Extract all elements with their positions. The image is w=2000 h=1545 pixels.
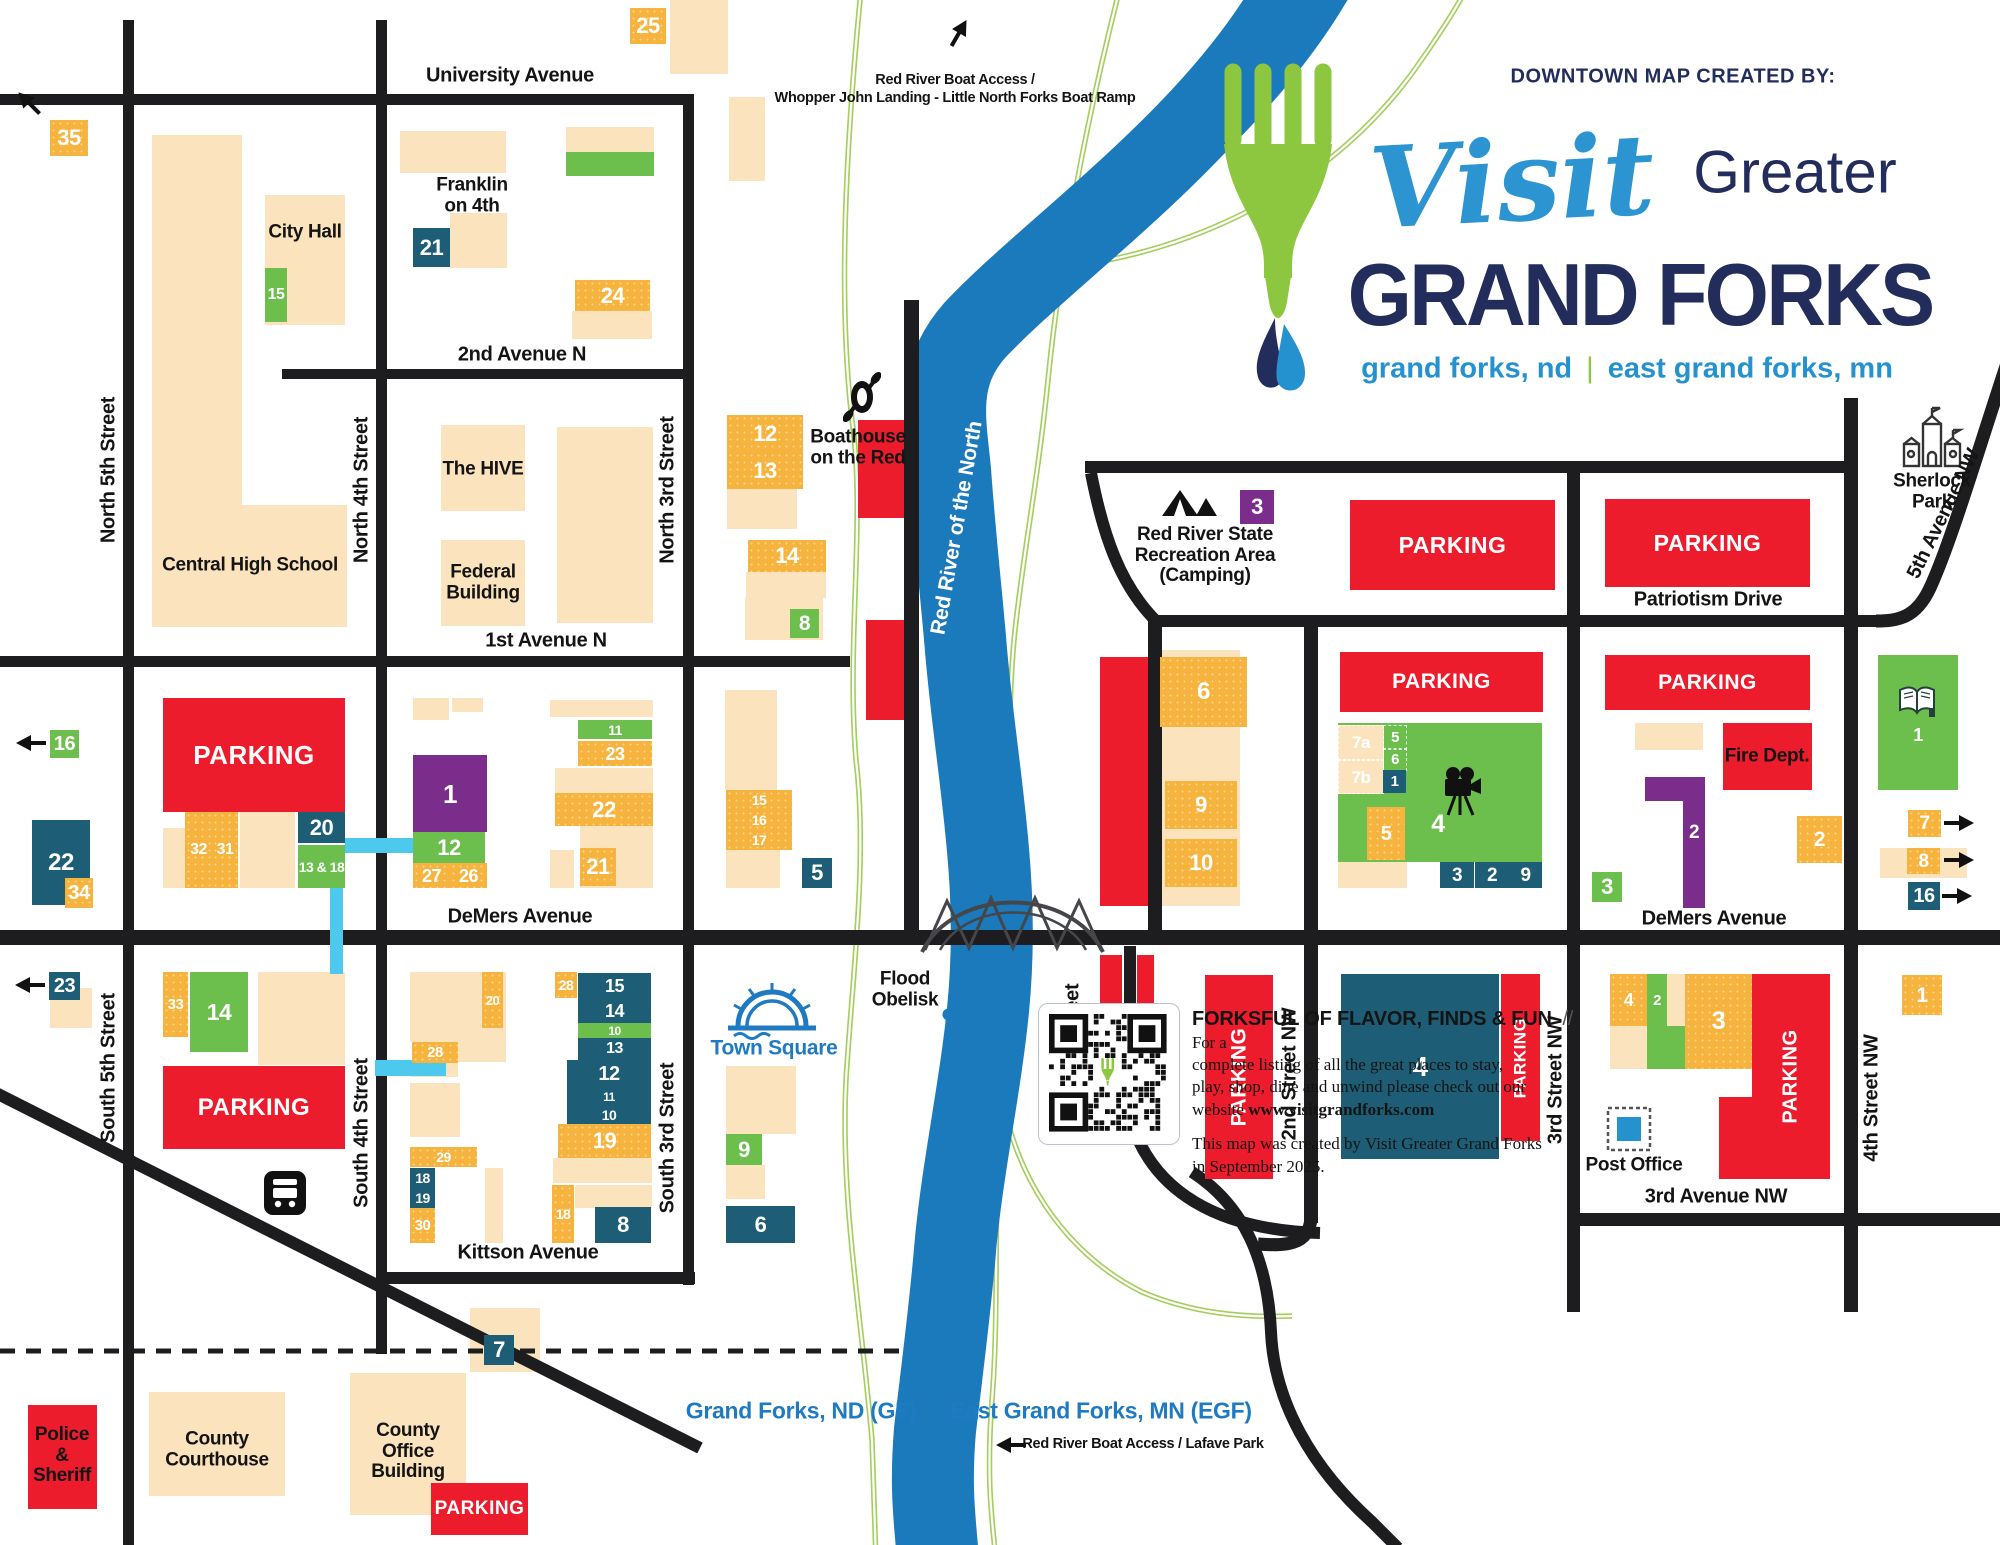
map-marker-7: 7 bbox=[1908, 810, 1941, 837]
building bbox=[725, 690, 777, 790]
credits-note: This map was created by Visit Greater Gr… bbox=[1192, 1133, 1580, 1178]
parking-lot: PARKING bbox=[1340, 652, 1543, 712]
map-marker-4: 4 bbox=[1610, 974, 1647, 1026]
map-marker-9: 9 bbox=[1165, 781, 1237, 829]
direction-arrow-icon bbox=[12, 86, 46, 120]
landmark-label: Flood Obelisk bbox=[872, 969, 939, 1010]
street-label: North 3rd Street bbox=[657, 416, 680, 563]
map-marker-16: 16 bbox=[726, 810, 792, 830]
map-marker-3: 3 bbox=[1240, 490, 1274, 524]
map-marker-18: 18 bbox=[552, 1185, 574, 1243]
book-icon bbox=[1896, 684, 1938, 718]
map-marker-21: 21 bbox=[413, 228, 450, 267]
landmark-label: Boathouse on the Red bbox=[810, 427, 905, 468]
building bbox=[566, 152, 654, 176]
map-marker-12: 12 bbox=[727, 415, 803, 452]
map-marker-10: 10 bbox=[1165, 839, 1237, 887]
street-label: North 4th Street bbox=[351, 417, 374, 563]
building bbox=[572, 311, 652, 339]
map-marker-8: 8 bbox=[1907, 848, 1940, 874]
building bbox=[450, 213, 507, 268]
parking-lot: PARKING bbox=[163, 698, 345, 812]
map-marker-2: 2 bbox=[1647, 974, 1667, 1026]
parking-label: PARKING bbox=[1658, 671, 1757, 695]
building bbox=[670, 0, 728, 74]
parking-lot: PARKING bbox=[431, 1483, 528, 1535]
landmark-label: Federal Building bbox=[446, 562, 520, 603]
direction-arrow-icon bbox=[16, 734, 46, 752]
street-road bbox=[1844, 398, 1858, 1312]
map-marker-3: 3 bbox=[1685, 974, 1752, 1069]
map-marker-12: 12 bbox=[567, 1060, 651, 1088]
parking-label: PARKING bbox=[1780, 1029, 1803, 1123]
map-marker-1: 1 bbox=[1383, 770, 1406, 793]
map-marker-13: 13 bbox=[578, 1038, 651, 1060]
street-road bbox=[904, 300, 919, 932]
map-marker-11: 11 bbox=[578, 720, 652, 739]
building bbox=[553, 1158, 652, 1183]
street-road bbox=[123, 20, 134, 1545]
map-marker-13&18: 13 & 18 bbox=[298, 845, 345, 888]
direction-arrow-icon bbox=[944, 16, 975, 51]
map-marker-24: 24 bbox=[575, 280, 650, 311]
building bbox=[452, 698, 483, 712]
building bbox=[152, 135, 242, 507]
building bbox=[550, 850, 574, 888]
credits-heading: FORKSFUL OF FLAVOR, FINDS & FUN // For a bbox=[1192, 1008, 1580, 1054]
map-marker-17: 17 bbox=[726, 830, 792, 850]
landmark-label: City Hall bbox=[268, 223, 341, 244]
map-marker-30: 30 bbox=[410, 1208, 435, 1243]
building bbox=[1338, 862, 1407, 888]
building bbox=[1667, 974, 1685, 1026]
street-label: 2nd Avenue N bbox=[458, 344, 586, 367]
map-marker-18: 18 bbox=[410, 1168, 435, 1188]
map-marker-19: 19 bbox=[410, 1188, 435, 1208]
parking-label: PARKING bbox=[435, 1498, 525, 1520]
map-marker-5: 5 bbox=[802, 858, 832, 888]
street-label: Red River of the North bbox=[926, 419, 987, 636]
kayak-icon bbox=[843, 368, 881, 426]
map-marker-10: 10 bbox=[578, 1023, 651, 1038]
credits-body: complete listing of all the great places… bbox=[1192, 1054, 1580, 1121]
website-link[interactable]: www.visitgrandforks.com bbox=[1248, 1100, 1434, 1119]
map-marker-20: 20 bbox=[298, 812, 345, 843]
street-road bbox=[1567, 465, 1580, 1312]
building bbox=[400, 131, 506, 173]
map-marker-1: 1 bbox=[413, 755, 487, 832]
dot-icon bbox=[942, 1008, 955, 1021]
map-marker-31: 31 bbox=[212, 812, 238, 888]
fork-logo-icon bbox=[1218, 62, 1348, 392]
landmark-label: Red River Boat Access / Whopper John Lan… bbox=[775, 71, 1136, 107]
parking-label: PARKING bbox=[1399, 532, 1507, 559]
bus-icon bbox=[264, 1171, 306, 1215]
direction-arrow-icon bbox=[1942, 887, 1972, 905]
building bbox=[1683, 800, 1705, 908]
map-marker-28: 28 bbox=[555, 972, 577, 998]
landmark-label: Post Office bbox=[1586, 1156, 1683, 1177]
map-marker-23: 23 bbox=[578, 741, 652, 766]
building bbox=[726, 850, 780, 888]
landmark-label: Police & Sheriff bbox=[33, 1425, 91, 1487]
downtown-map: PARKINGPARKINGPARKINGPARKINGPARKINGPARKI… bbox=[0, 0, 2000, 1545]
building bbox=[413, 698, 449, 720]
map-marker-1: 1 bbox=[1902, 975, 1942, 1015]
building bbox=[1610, 1026, 1647, 1069]
street-road bbox=[0, 656, 850, 667]
building bbox=[163, 828, 185, 888]
castle-icon bbox=[1898, 406, 1966, 470]
building bbox=[410, 972, 460, 1042]
map-marker-2: 2 bbox=[1475, 862, 1509, 888]
building bbox=[485, 1168, 503, 1243]
tent-icon bbox=[1160, 486, 1218, 518]
building bbox=[727, 489, 797, 529]
map-marker-10: 10 bbox=[567, 1105, 651, 1124]
map-marker-7b: 7b bbox=[1338, 760, 1384, 794]
street-label: South 5th Street bbox=[98, 993, 121, 1143]
map-marker-2: 2 bbox=[1797, 816, 1842, 863]
map-marker-27: 27 bbox=[413, 863, 450, 888]
street-label: Kittson Avenue bbox=[458, 1242, 599, 1265]
map-marker-25: 25 bbox=[630, 8, 666, 44]
parking-lot: PARKING bbox=[1350, 500, 1555, 590]
map-marker-3: 3 bbox=[1592, 872, 1622, 902]
map-marker-9: 9 bbox=[1509, 862, 1542, 888]
map-marker-26: 26 bbox=[450, 863, 487, 888]
map-marker-12: 12 bbox=[413, 832, 485, 863]
building bbox=[410, 1083, 460, 1137]
building bbox=[557, 427, 653, 623]
map-marker-14: 14 bbox=[578, 998, 651, 1023]
landmark-label: The HIVE bbox=[442, 460, 523, 481]
street-road bbox=[1148, 615, 1890, 627]
building bbox=[566, 127, 654, 152]
map-marker-14: 14 bbox=[190, 972, 248, 1052]
landmark-label: County Courthouse bbox=[165, 1429, 269, 1470]
map-marker-33: 33 bbox=[163, 972, 188, 1037]
map-marker-2: 2 bbox=[1683, 820, 1705, 844]
map-marker-15: 15 bbox=[265, 268, 287, 322]
street-label: South 3rd Street bbox=[657, 1063, 680, 1214]
street-label: University Avenue bbox=[426, 65, 594, 88]
credits-block: FORKSFUL OF FLAVOR, FINDS & FUN // For a… bbox=[1192, 1008, 1580, 1178]
map-marker-11: 11 bbox=[567, 1088, 651, 1105]
map-marker-15: 15 bbox=[578, 973, 651, 998]
map-marker-9: 9 bbox=[726, 1134, 762, 1165]
street-road bbox=[376, 20, 387, 1354]
map-marker-6: 6 bbox=[726, 1206, 795, 1243]
building bbox=[575, 1185, 652, 1208]
map-marker-3: 3 bbox=[1440, 862, 1474, 888]
building bbox=[729, 97, 765, 181]
map-marker-7a: 7a bbox=[1338, 725, 1384, 760]
street-label: North 5th Street bbox=[98, 397, 121, 543]
landmark-label: Grand Forks, ND (GF) bbox=[686, 1399, 916, 1424]
street-label: 1st Avenue N bbox=[485, 630, 607, 653]
logo-subtitle: grand forks, nd|east grand forks, mn bbox=[1361, 353, 1893, 386]
building bbox=[1100, 657, 1148, 906]
landmark-label: East Grand Forks, MN (EGF) bbox=[950, 1399, 1251, 1424]
map-marker-16: 16 bbox=[1908, 882, 1940, 910]
parking-label: PARKING bbox=[198, 1094, 310, 1122]
parking-lot: PARKING bbox=[163, 1066, 345, 1149]
building bbox=[1647, 1026, 1685, 1069]
building bbox=[555, 768, 653, 793]
building bbox=[726, 1165, 765, 1199]
map-marker-22: 22 bbox=[555, 793, 653, 826]
street-road bbox=[0, 930, 2000, 945]
parking-label: PARKING bbox=[193, 740, 314, 771]
building bbox=[1719, 1097, 1752, 1179]
street-label: Patriotism Drive bbox=[1634, 589, 1783, 612]
skywalk bbox=[345, 838, 415, 853]
street-road bbox=[1085, 461, 1852, 473]
map-marker-15: 15 bbox=[726, 790, 792, 810]
map-marker-23: 23 bbox=[49, 972, 80, 1000]
map-marker-21: 21 bbox=[580, 848, 616, 886]
camera-icon bbox=[1443, 765, 1483, 817]
street-label: 4th Street NW bbox=[1861, 1034, 1884, 1161]
parking-lot: PARKING bbox=[1605, 499, 1810, 587]
direction-arrow-icon bbox=[1944, 814, 1974, 832]
street-label: South 4th Street bbox=[351, 1058, 374, 1208]
logo-greater: Greater bbox=[1693, 138, 1896, 207]
map-marker-8: 8 bbox=[595, 1207, 651, 1243]
map-marker-1: 1 bbox=[1908, 723, 1928, 747]
landmark-label: Fire Dept. bbox=[1725, 747, 1810, 768]
parking-label: PARKING bbox=[1392, 670, 1491, 694]
map-marker-7: 7 bbox=[484, 1335, 514, 1365]
map-marker-28: 28 bbox=[412, 1042, 458, 1063]
map-marker-32: 32 bbox=[185, 812, 212, 888]
street-road bbox=[0, 94, 694, 105]
building bbox=[240, 812, 295, 888]
map-marker-14: 14 bbox=[748, 540, 826, 572]
building bbox=[726, 1066, 796, 1134]
map-marker-6: 6 bbox=[1160, 657, 1247, 727]
landmark-label: Central High School bbox=[162, 556, 338, 577]
logo-created-by: DOWNTOWN MAP CREATED BY: bbox=[1511, 66, 1836, 89]
map-marker-5: 5 bbox=[1367, 807, 1405, 860]
map-marker-13: 13 bbox=[727, 452, 803, 489]
building bbox=[746, 572, 826, 598]
landmark-label: Red River State Recreation Area (Camping… bbox=[1135, 525, 1276, 587]
street-label: DeMers Avenue bbox=[448, 906, 593, 929]
skywalk bbox=[330, 888, 343, 974]
street-road bbox=[1580, 1213, 2000, 1226]
map-marker-6: 6 bbox=[1383, 748, 1407, 771]
direction-arrow-icon bbox=[15, 976, 45, 994]
map-marker-8: 8 bbox=[790, 609, 819, 638]
map-marker-16: 16 bbox=[50, 730, 79, 758]
street-label: 3rd Avenue NW bbox=[1645, 1186, 1787, 1209]
map-marker-19: 19 bbox=[558, 1124, 651, 1158]
parking-lot: PARKING bbox=[1752, 974, 1830, 1179]
qr-code bbox=[1038, 1003, 1180, 1145]
stamp-icon bbox=[1606, 1106, 1652, 1152]
map-marker-34: 34 bbox=[65, 878, 93, 908]
townsquare-icon bbox=[724, 968, 820, 1042]
building bbox=[1645, 777, 1705, 801]
landmark-label: Town Square bbox=[711, 1038, 838, 1061]
map-marker-35: 35 bbox=[50, 120, 88, 156]
parking-label: PARKING bbox=[1654, 530, 1762, 557]
parking-lot: PARKING bbox=[1605, 655, 1810, 710]
map-marker-29: 29 bbox=[410, 1147, 477, 1167]
street-road bbox=[282, 369, 694, 379]
logo-visit: Visit bbox=[1366, 109, 1657, 255]
street-road bbox=[683, 95, 694, 1285]
map-marker-5: 5 bbox=[1383, 725, 1407, 750]
street-label: DeMers Avenue bbox=[1642, 908, 1787, 931]
landmark-label: County Office Building bbox=[371, 1421, 445, 1483]
map-marker-20: 20 bbox=[482, 972, 503, 1028]
building bbox=[1635, 723, 1703, 750]
landmark-label: Franklin on 4th bbox=[436, 175, 508, 216]
landmark-label: Red River Boat Access / Lafave Park bbox=[1022, 1435, 1263, 1453]
landmark-label: Sherlock Park bbox=[1893, 471, 1971, 512]
logo-grand-forks: GRAND FORKS bbox=[1348, 244, 1933, 346]
direction-arrow-icon bbox=[1944, 851, 1974, 869]
street-road bbox=[381, 1272, 695, 1284]
building bbox=[550, 700, 653, 717]
building bbox=[258, 972, 345, 1065]
